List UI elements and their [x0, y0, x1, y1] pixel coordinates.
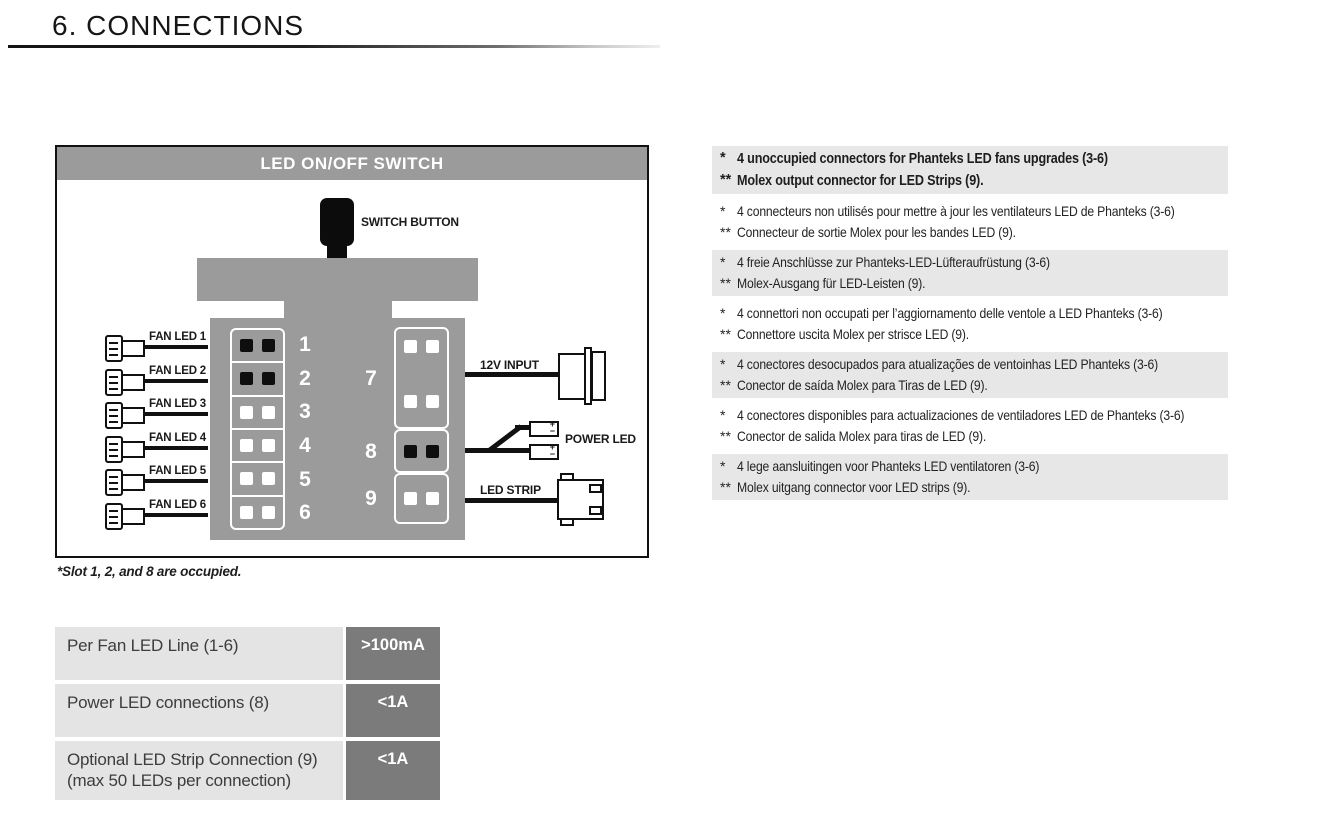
- diagram-footnote: *Slot 1, 2, and 8 are occupied.: [57, 564, 241, 579]
- fan-wire: [144, 345, 208, 350]
- note-line: **Molex uitgang connector voor LED strip…: [720, 477, 1228, 498]
- fan-connector-tab: [121, 474, 145, 491]
- spec-label-line1: Optional LED Strip Connection (9): [67, 749, 343, 770]
- note-line: *4 connettori non occupati per l’aggiorn…: [720, 303, 1228, 324]
- slot-number-8: 8: [355, 435, 387, 468]
- power-led-wire: [465, 448, 531, 453]
- switch-button-label: SWITCH BUTTON: [361, 215, 459, 229]
- slot-number-3: 3: [287, 395, 323, 428]
- fan-wire: [144, 513, 208, 518]
- fan-connector-tab: [121, 340, 145, 357]
- note-line: *4 lege aansluitingen voor Phanteks LED …: [720, 456, 1228, 477]
- slot-box-8: [394, 429, 449, 473]
- note-block-dutch: *4 lege aansluitingen voor Phanteks LED …: [712, 454, 1228, 500]
- diagram-title: LED ON/OFF SWITCH: [57, 147, 647, 180]
- note-block-spanish: *4 conectores disponibles para actualiza…: [712, 403, 1228, 449]
- notes-column: *4 unoccupied connectors for Phanteks LE…: [712, 146, 1228, 505]
- spec-value-cell: <1A: [346, 684, 440, 737]
- slot-cell-4: [232, 428, 283, 461]
- led-strip-wire: [465, 498, 560, 503]
- fan-led-label: FAN LED 5: [149, 465, 206, 477]
- fan-wire: [144, 412, 208, 417]
- note-line: **Conector de salida Molex para tiras de…: [720, 426, 1228, 447]
- slot-cell-6: [232, 495, 283, 528]
- fan-connector-tab: [121, 508, 145, 525]
- title-rule: [8, 45, 660, 48]
- note-line: **Molex output connector for LED Strips …: [720, 170, 1228, 192]
- minus-mark: −: [550, 426, 555, 436]
- slot-box-7: [394, 327, 449, 429]
- page-title: 6. CONNECTIONS: [52, 10, 304, 42]
- spec-value-cell: <1A: [346, 741, 440, 800]
- slot-number-7: 7: [355, 362, 387, 395]
- slot-number-5: 5: [287, 463, 323, 496]
- slot-box-9: [394, 473, 449, 524]
- manual-page: 6. CONNECTIONS LED ON/OFF SWITCH SWITCH …: [0, 0, 1342, 828]
- slot-cell-3: [232, 395, 283, 428]
- switch-body-top: [197, 258, 478, 301]
- note-block-english: *4 unoccupied connectors for Phanteks LE…: [712, 146, 1228, 194]
- power-led-label: POWER LED: [565, 432, 636, 446]
- fan-led-label: FAN LED 1: [149, 331, 206, 343]
- spec-value-cell: >100mA: [346, 627, 440, 680]
- strip-connector-notch-bottom: [589, 506, 602, 515]
- slot-number-2: 2: [287, 362, 323, 395]
- note-line: **Connecteur de sortie Molex pour les ba…: [720, 222, 1228, 243]
- note-line: *4 unoccupied connectors for Phanteks LE…: [720, 148, 1228, 170]
- slot-number-4: 4: [287, 429, 323, 462]
- spec-row-led-strip: Optional LED Strip Connection (9) (max 5…: [55, 741, 440, 800]
- note-line: **Conector de saída Molex para Tiras de …: [720, 375, 1228, 396]
- slot-number-9: 9: [355, 482, 387, 515]
- note-block-italian: *4 connettori non occupati per l’aggiorn…: [712, 301, 1228, 347]
- fan-wire: [144, 479, 208, 484]
- slot-cell-2: [232, 361, 283, 394]
- spec-row-fan-led: Per Fan LED Line (1-6) >100mA: [55, 627, 440, 680]
- fan-led-label: FAN LED 3: [149, 398, 206, 410]
- spec-label-cell: Power LED connections (8): [55, 684, 343, 737]
- fan-connector-tab: [121, 374, 145, 391]
- switch-button-icon: [320, 198, 354, 246]
- note-block-portuguese: *4 conectores desocupados para atualizaç…: [712, 352, 1228, 398]
- 12v-connector-body: [558, 353, 587, 400]
- 12v-input-label: 12V INPUT: [480, 358, 539, 372]
- note-block-french: *4 connecteurs non utilisés pour mettre …: [712, 199, 1228, 245]
- slot-cell-1: [232, 330, 283, 361]
- note-line: *4 connecteurs non utilisés pour mettre …: [720, 201, 1228, 222]
- power-led-connector-1: + −: [529, 421, 559, 437]
- spec-label-cell: Per Fan LED Line (1-6): [55, 627, 343, 680]
- spec-label-cell: Optional LED Strip Connection (9) (max 5…: [55, 741, 343, 800]
- 12v-input-wire: [465, 372, 560, 377]
- note-block-german: *4 freie Anschlüsse zur Phanteks-LED-Lüf…: [712, 250, 1228, 296]
- minus-mark: −: [550, 449, 555, 459]
- fan-connector-tab: [121, 441, 145, 458]
- note-line: **Molex-Ausgang für LED-Leisten (9).: [720, 273, 1228, 294]
- strip-connector-notch-top: [589, 484, 602, 493]
- fan-wire: [144, 446, 208, 451]
- power-led-connector-2: + −: [529, 444, 559, 460]
- spec-row-power-led: Power LED connections (8) <1A: [55, 684, 440, 737]
- slot-number-6: 6: [287, 496, 323, 529]
- fan-led-label: FAN LED 2: [149, 365, 206, 377]
- fan-led-label: FAN LED 6: [149, 499, 206, 511]
- fan-connector-tab: [121, 407, 145, 424]
- spec-label-line1: Per Fan LED Line (1-6): [67, 635, 343, 656]
- note-line: *4 conectores desocupados para atualizaç…: [720, 354, 1228, 375]
- spec-label-line1: Power LED connections (8): [67, 692, 343, 713]
- spec-label-line2: (max 50 LEDs per connection): [67, 770, 343, 791]
- fan-led-label: FAN LED 4: [149, 432, 206, 444]
- note-line: *4 freie Anschlüsse zur Phanteks-LED-Lüf…: [720, 252, 1228, 273]
- fan-wire: [144, 379, 208, 384]
- led-switch-diagram: LED ON/OFF SWITCH SWITCH BUTTON FAN LED …: [55, 145, 649, 558]
- led-strip-label: LED STRIP: [480, 483, 541, 497]
- 12v-connector-flange: [584, 347, 592, 405]
- note-line: **Connettore uscita Molex per strisce LE…: [720, 324, 1228, 345]
- slot-cell-5: [232, 461, 283, 494]
- slot-column-left: [230, 328, 285, 530]
- note-line: *4 conectores disponibles para actualiza…: [720, 405, 1228, 426]
- 12v-connector-tip: [591, 351, 606, 401]
- slot-number-1: 1: [287, 328, 323, 361]
